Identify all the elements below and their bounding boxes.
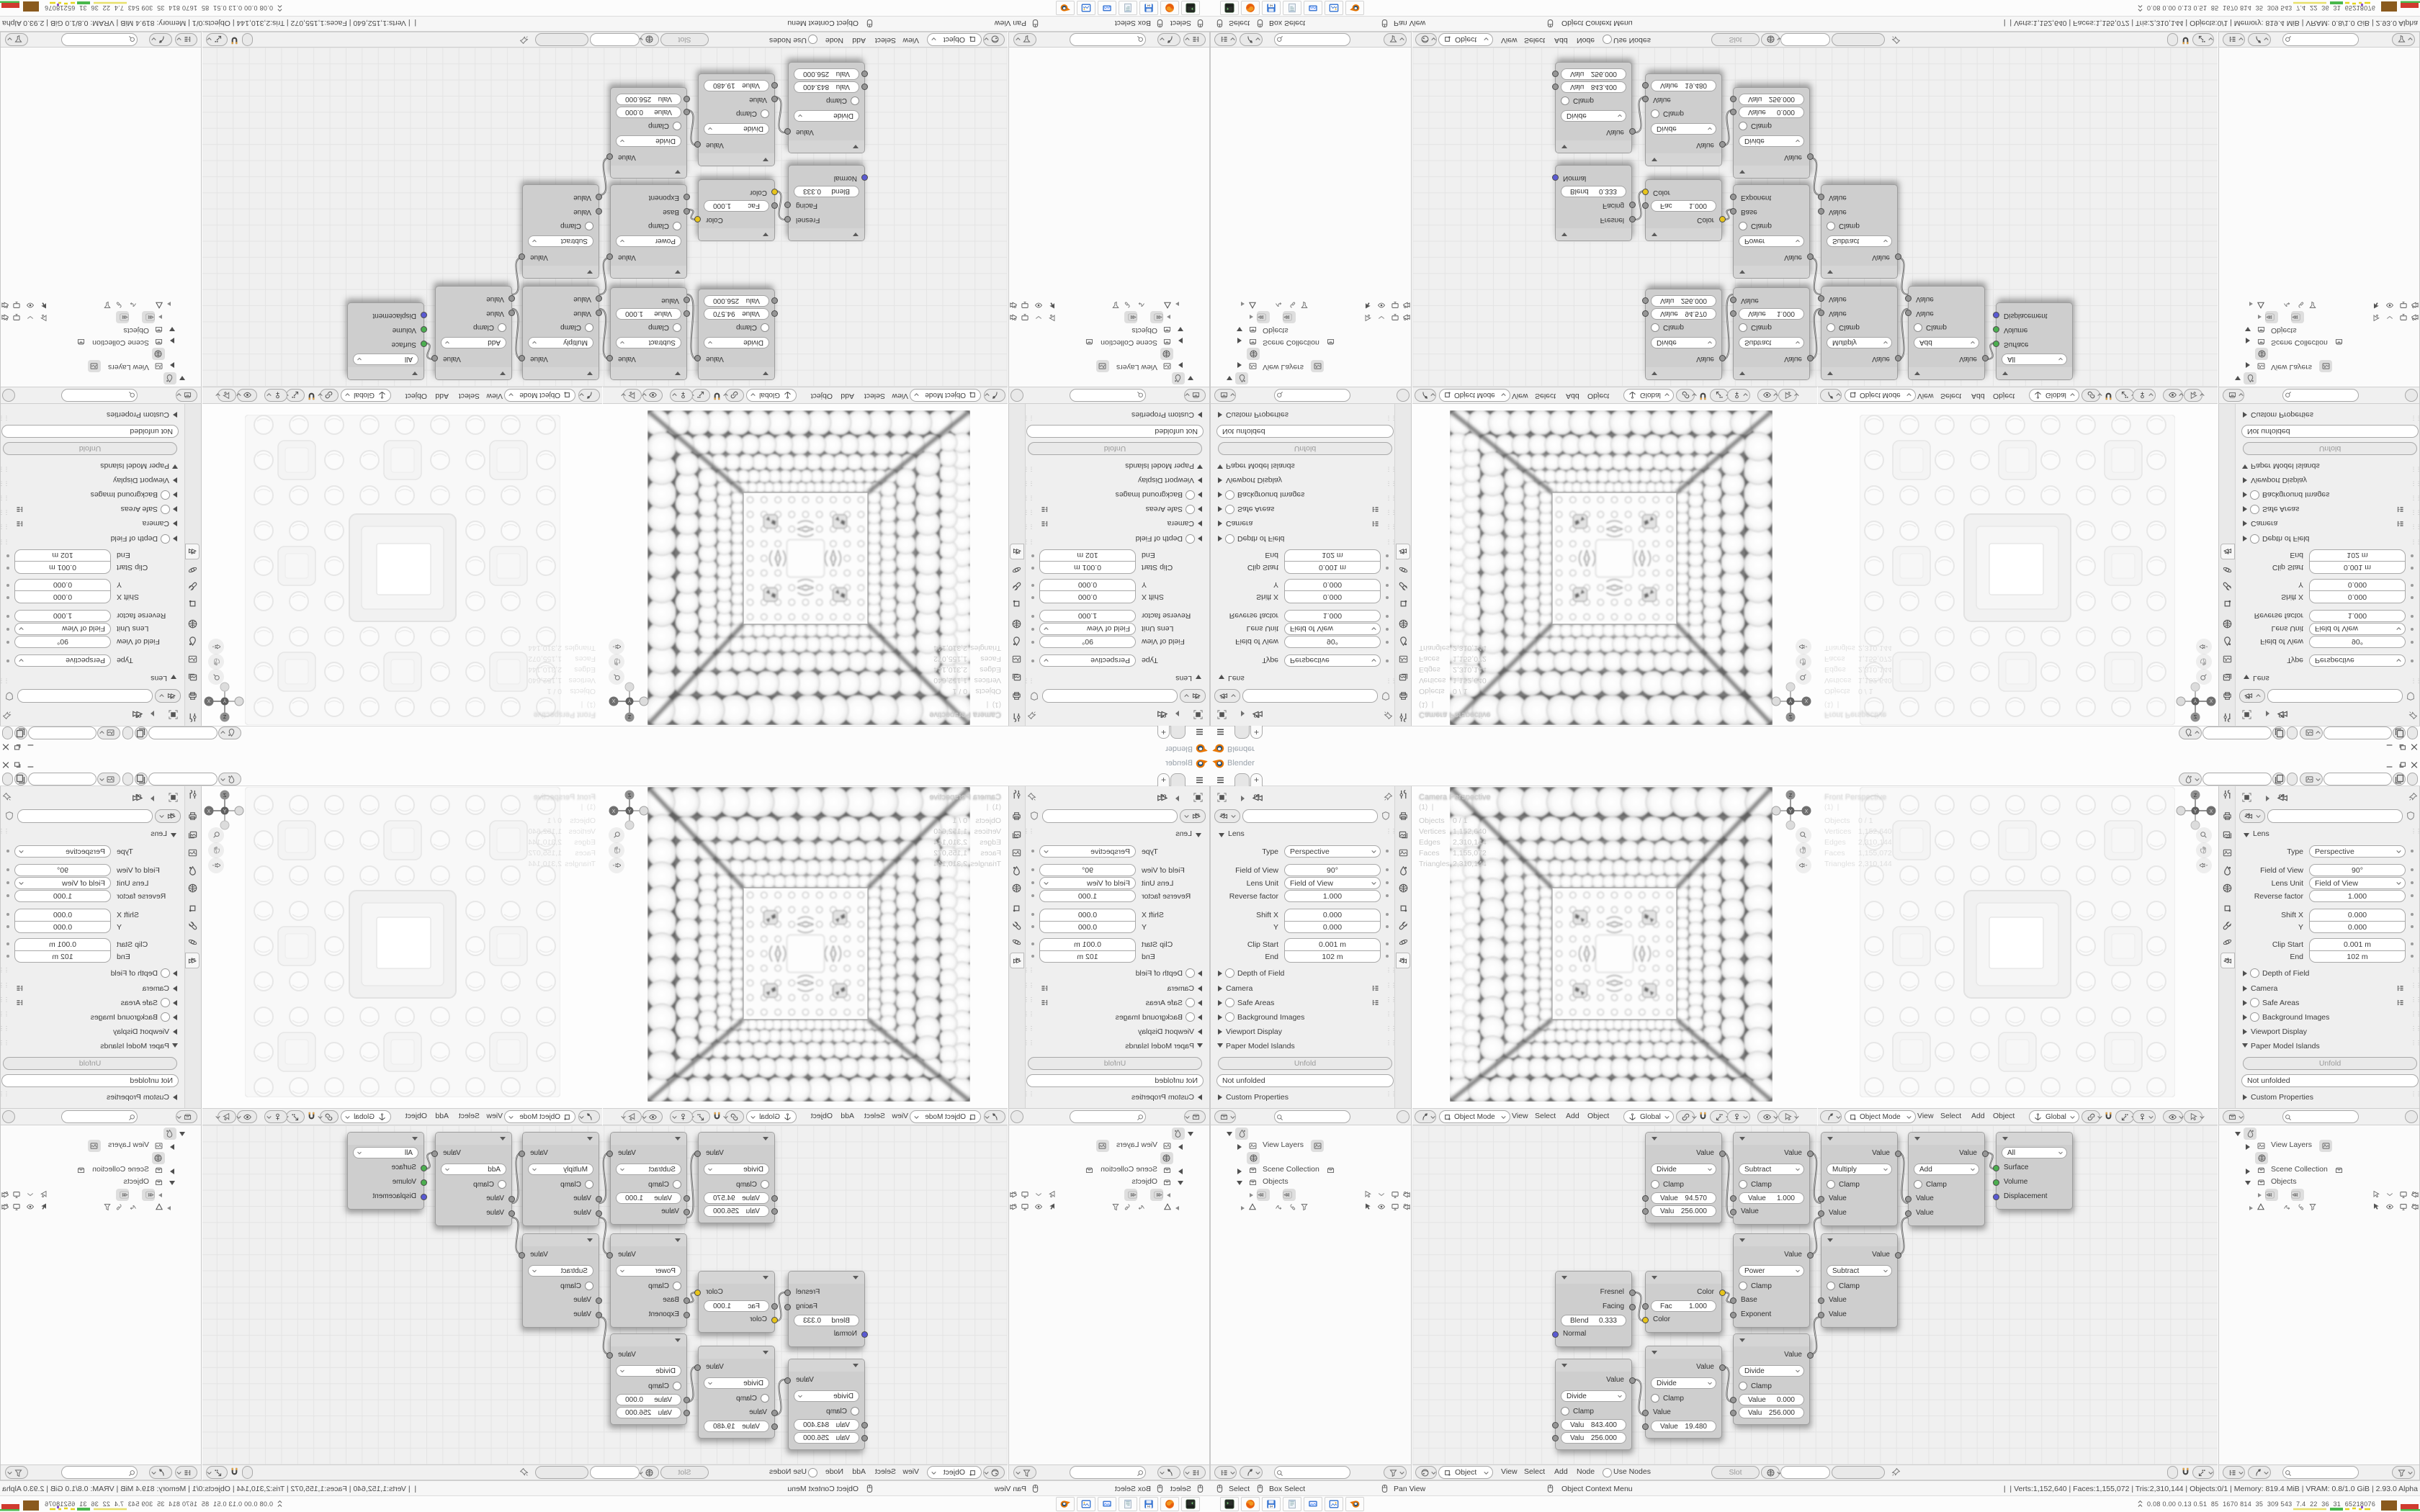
svg-text:Z: Z	[1789, 714, 1793, 719]
svg-text:Y: Y	[223, 698, 226, 703]
svg-text:Y: Y	[627, 809, 631, 814]
svg-text:X: X	[611, 698, 615, 703]
svg-text:Z: Z	[223, 793, 226, 798]
svg-text:X: X	[611, 809, 615, 814]
svg-text:X: X	[207, 698, 210, 703]
svg-text:Z: Z	[627, 793, 631, 798]
svg-text:Z: Z	[223, 714, 226, 719]
svg-text:X: X	[1805, 809, 1809, 814]
svg-text:Y: Y	[627, 698, 631, 703]
svg-text:X: X	[207, 809, 210, 814]
svg-text:Y: Y	[223, 809, 226, 814]
svg-text:X: X	[2210, 809, 2213, 814]
svg-text:Z: Z	[627, 714, 631, 719]
svg-text:X: X	[1805, 698, 1809, 703]
svg-text:Y: Y	[1789, 698, 1793, 703]
svg-text:Z: Z	[2194, 714, 2197, 719]
svg-text:Y: Y	[1789, 809, 1793, 814]
svg-text:Y: Y	[2194, 698, 2197, 703]
svg-text:Z: Z	[2194, 793, 2197, 798]
svg-text:Z: Z	[1789, 793, 1793, 798]
svg-text:X: X	[2210, 698, 2213, 703]
svg-text:Y: Y	[2194, 809, 2197, 814]
